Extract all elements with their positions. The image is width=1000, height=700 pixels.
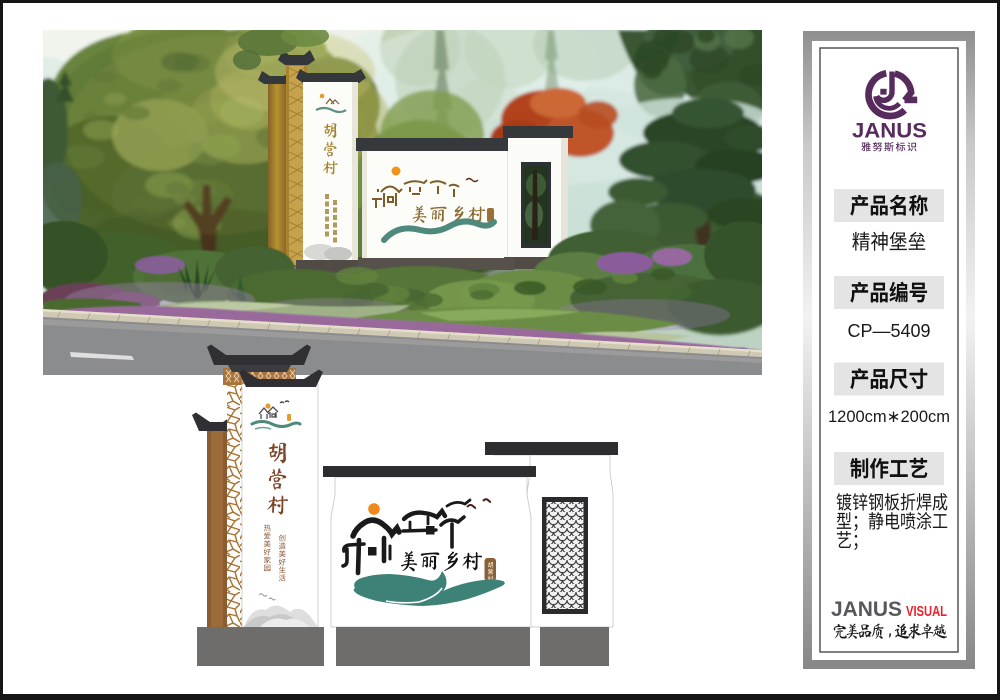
svg-text:JANUS: JANUS [831, 597, 902, 621]
svg-text:VISUAL: VISUAL [906, 603, 947, 620]
svg-text:JANUS: JANUS [852, 119, 927, 143]
svg-text:CP—5409: CP—5409 [847, 321, 930, 341]
svg-text:1200cm∗200cm: 1200cm∗200cm [828, 408, 950, 426]
